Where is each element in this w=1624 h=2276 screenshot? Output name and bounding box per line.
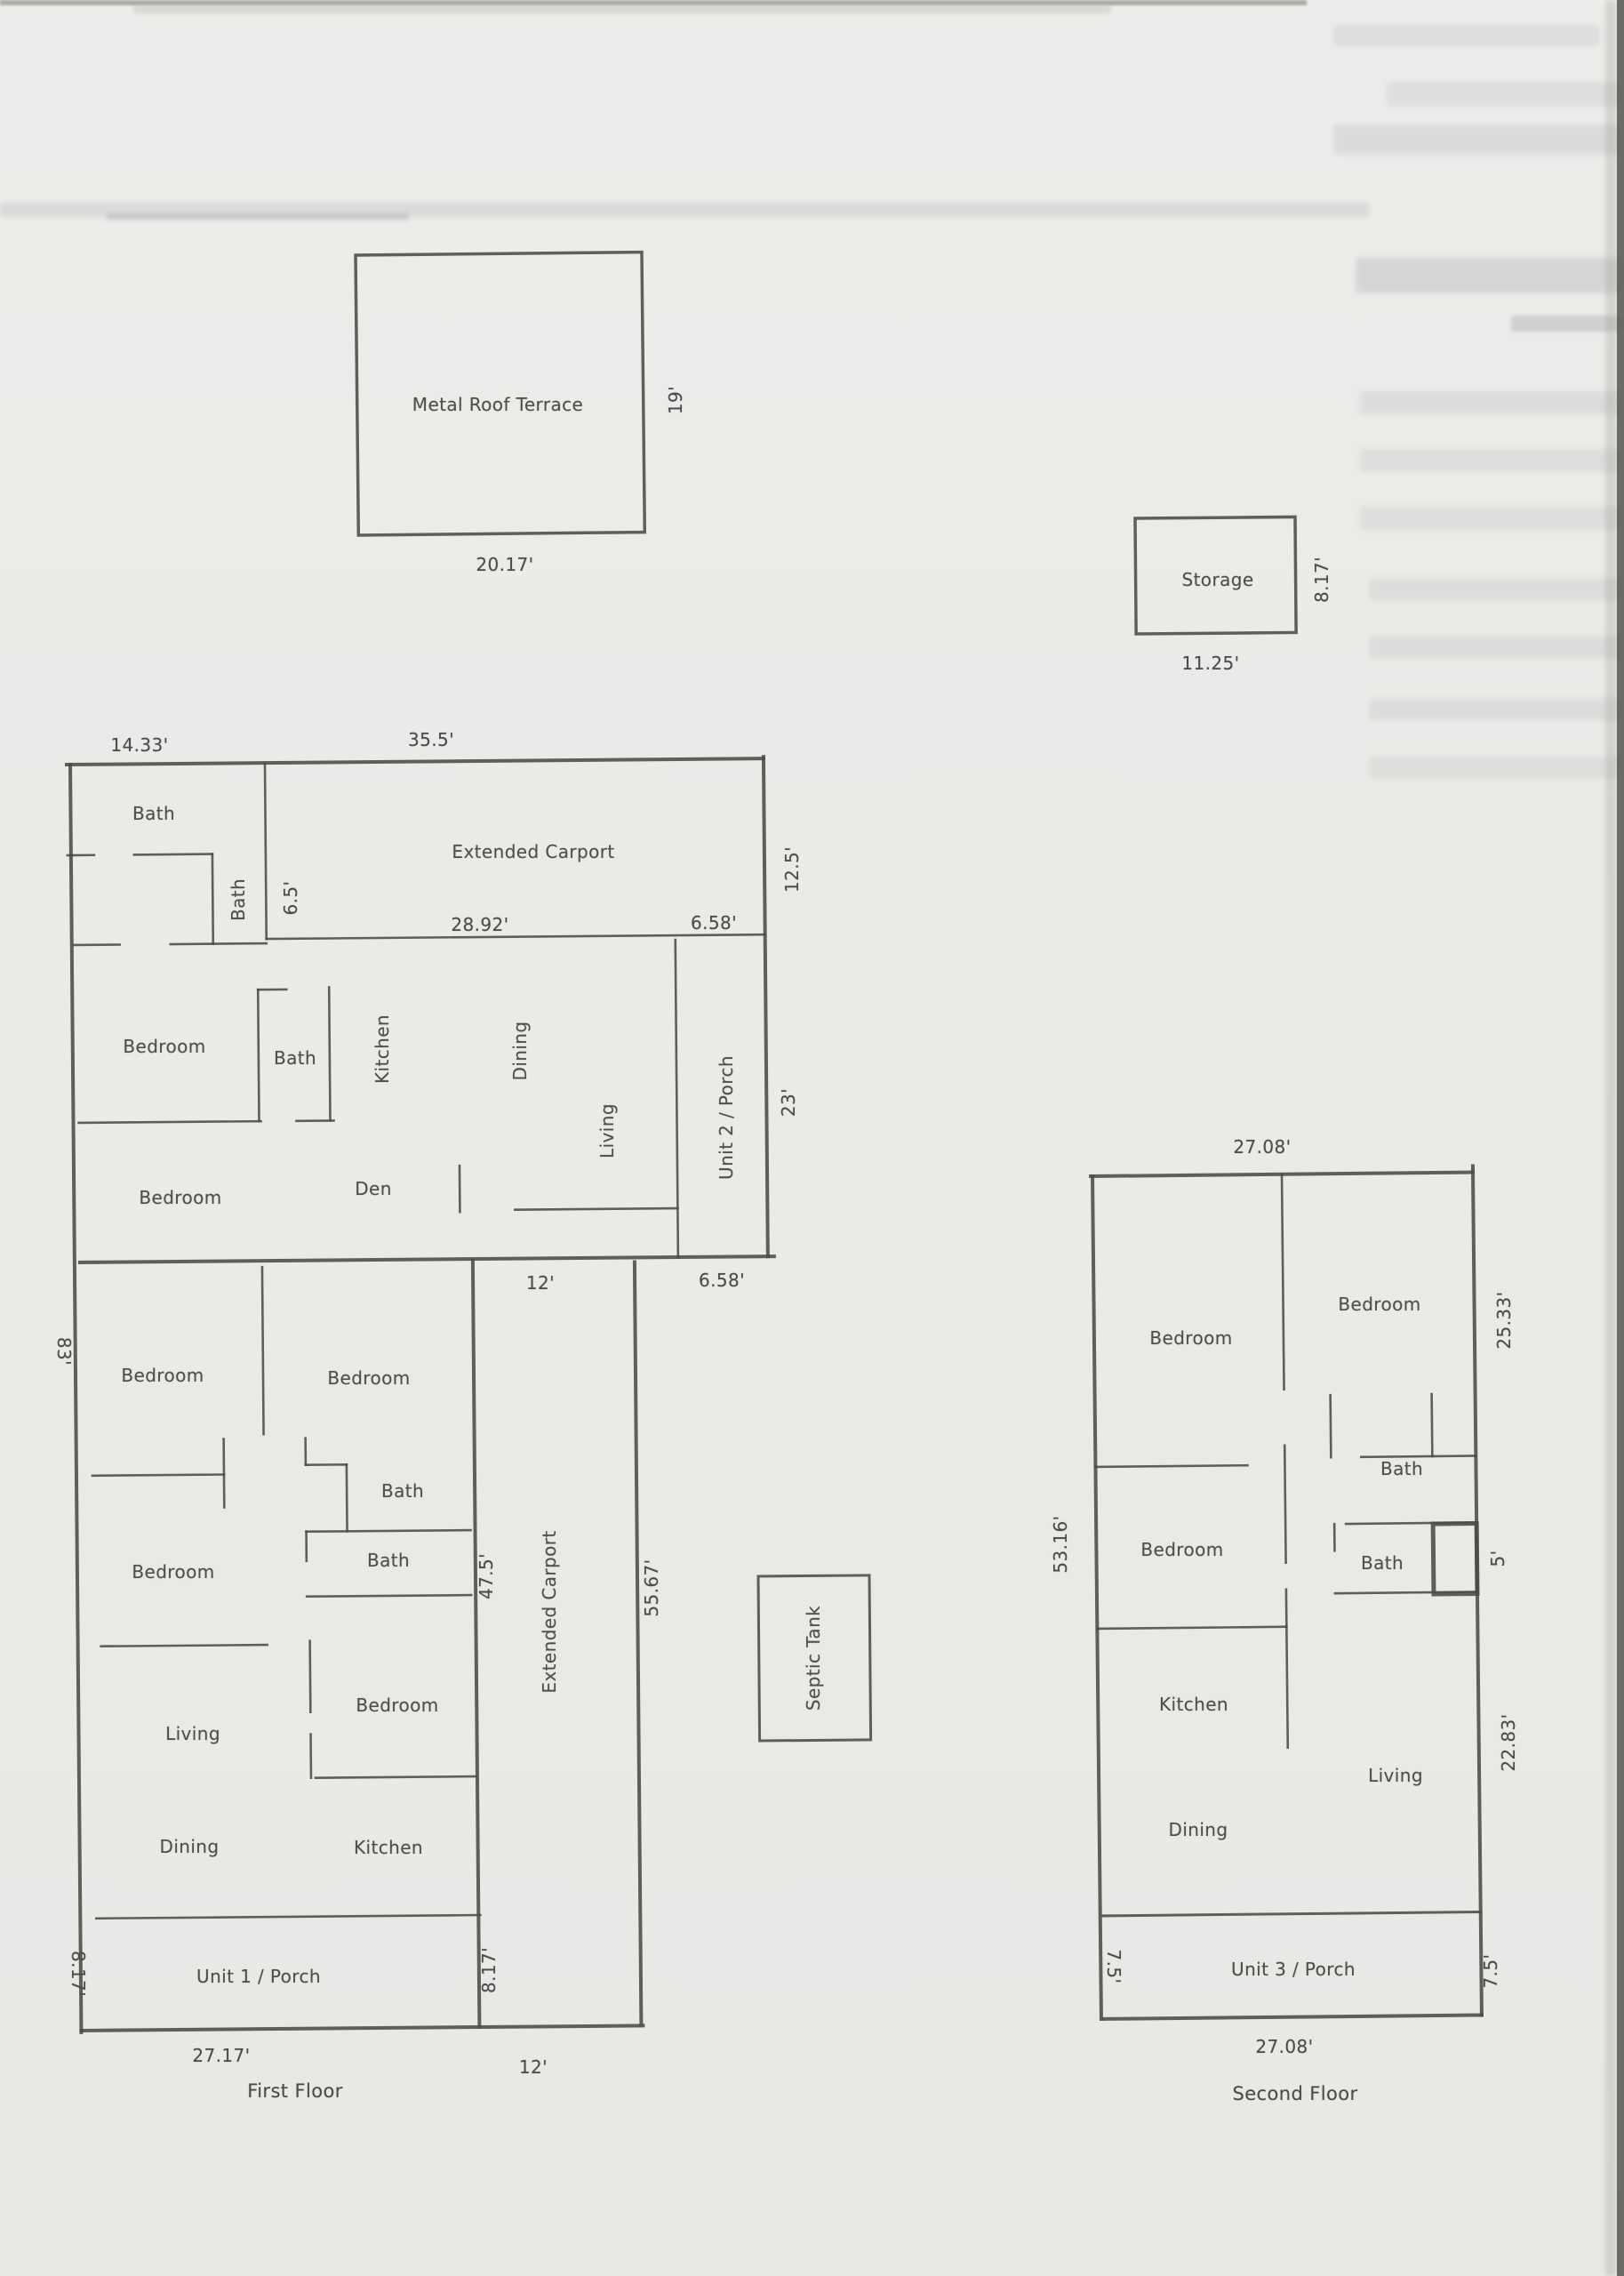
- room-label-bath: Bath: [228, 878, 249, 921]
- bleedthrough-artifact: [1387, 82, 1624, 107]
- dim-label: 53.16': [1050, 1515, 1071, 1573]
- dim-label: 25.33': [1493, 1291, 1515, 1349]
- room-label-bath: Bath: [1361, 1552, 1404, 1574]
- dim-label: 47.5': [476, 1553, 497, 1599]
- dim-label: 23': [778, 1088, 799, 1117]
- room-label-dining: Dining: [160, 1836, 220, 1857]
- dim-label: 28.92': [451, 914, 508, 935]
- second-floor-plan: Bedroom Bedroom Bath Bath Bedroom Kitche…: [1049, 1129, 1582, 2160]
- scan-edge-right: [1617, 0, 1624, 2276]
- room-label-bedroom: Bedroom: [356, 1695, 438, 1716]
- bleedthrough-artifact: [1369, 698, 1624, 721]
- first-floor-plan: Bath Bath Extended Carport Bedroom Bath …: [53, 736, 871, 2159]
- room-label-unit2-porch: Unit 2 / Porch: [716, 1055, 737, 1180]
- room-label-bath: Bath: [274, 1047, 316, 1069]
- bleedthrough-artifact: [1360, 391, 1624, 414]
- dim-label: 55.67': [641, 1559, 662, 1616]
- room-label-bath: Bath: [367, 1550, 410, 1571]
- storage-plan: Storage 8.17' 11.25': [1120, 498, 1369, 702]
- dim-label: 5': [1487, 1550, 1508, 1567]
- scan-edge-right-shadow: [1605, 0, 1617, 2276]
- room-label-bath: Bath: [132, 803, 175, 824]
- room-label-kitchen: Kitchen: [372, 1014, 393, 1084]
- room-label-storage: Storage: [1181, 569, 1253, 590]
- dim-label: 35.5': [408, 729, 454, 750]
- dim-terrace-height: 19': [665, 386, 686, 414]
- dim-label: 22.83': [1498, 1713, 1519, 1771]
- room-label-living: Living: [1368, 1765, 1423, 1786]
- scan-edge-top: [0, 0, 1307, 5]
- dim-label: 7.5': [1103, 1950, 1124, 1984]
- room-label-unit3-porch: Unit 3 / Porch: [1231, 1959, 1356, 1980]
- room-label-living: Living: [165, 1723, 220, 1744]
- room-label-bath: Bath: [381, 1480, 424, 1502]
- bleedthrough-artifact: [1360, 449, 1624, 472]
- first-floor-walls: [53, 736, 871, 2159]
- dim-label: 7.5': [1480, 1954, 1501, 1989]
- dim-label: 27.08': [1255, 2036, 1313, 2057]
- room-label-carport: Extended Carport: [452, 841, 614, 862]
- terrace-walls: [351, 249, 724, 622]
- bleedthrough-artifact: [107, 213, 409, 220]
- room-label-bedroom: Bedroom: [1338, 1294, 1420, 1315]
- dim-label: 8.17': [478, 1947, 500, 1993]
- room-label-dining: Dining: [509, 1022, 531, 1081]
- bleedthrough-artifact: [0, 203, 1369, 217]
- dim-label: 6.5': [280, 881, 301, 916]
- dim-label: 12': [519, 2056, 548, 2078]
- room-label-living: Living: [596, 1103, 618, 1158]
- room-label-bedroom: Bedroom: [327, 1367, 410, 1389]
- dim-label: 12': [526, 1272, 555, 1294]
- dim-terrace-width: 20.17': [476, 554, 533, 575]
- room-label-terrace: Metal Roof Terrace: [412, 394, 583, 415]
- dim-label: 27.08': [1233, 1136, 1291, 1158]
- dim-storage-height: 8.17': [1311, 557, 1332, 603]
- room-label-unit1-porch: Unit 1 / Porch: [196, 1966, 321, 1987]
- bleedthrough-artifact: [1360, 507, 1624, 530]
- dim-label: 27.17': [192, 2045, 250, 2066]
- scanned-floor-plan-page: Metal Roof Terrace 20.17' 19' Storage 8.…: [0, 0, 1624, 2276]
- room-label-bedroom: Bedroom: [1140, 1539, 1223, 1560]
- bleedthrough-artifact: [1333, 124, 1624, 155]
- bleedthrough-artifact: [133, 5, 1111, 13]
- dim-storage-width: 11.25': [1181, 653, 1239, 674]
- room-label-bedroom: Bedroom: [123, 1036, 205, 1057]
- room-label-bedroom: Bedroom: [139, 1187, 221, 1208]
- room-label-bedroom: Bedroom: [132, 1561, 214, 1583]
- dim-label: 83': [53, 1337, 75, 1366]
- room-label-kitchen: Kitchen: [1159, 1694, 1228, 1715]
- bleedthrough-artifact: [1356, 258, 1624, 293]
- room-label-bedroom: Bedroom: [1149, 1327, 1232, 1349]
- bleedthrough-artifact: [1333, 25, 1600, 46]
- dim-label: 6.58': [699, 1270, 745, 1291]
- room-label-bedroom: Bedroom: [121, 1365, 204, 1386]
- room-label-bath: Bath: [1380, 1458, 1423, 1479]
- floor-caption-second: Second Floor: [1232, 2083, 1357, 2104]
- dim-label: 14.33': [110, 734, 168, 756]
- room-label-dining: Dining: [1169, 1819, 1228, 1840]
- dim-label: 6.58': [691, 912, 737, 934]
- room-label-kitchen: Kitchen: [354, 1837, 423, 1858]
- room-label-carport: Extended Carport: [539, 1530, 560, 1693]
- dim-label: 8.17': [68, 1951, 89, 1997]
- bleedthrough-artifact: [1511, 316, 1624, 332]
- floor-caption-first: First Floor: [247, 2080, 343, 2102]
- room-label-den: Den: [355, 1178, 392, 1199]
- second-floor-walls: [1049, 1129, 1582, 2160]
- bleedthrough-artifact: [1369, 636, 1624, 659]
- bleedthrough-artifact: [1369, 578, 1624, 601]
- terrace-plan: Metal Roof Terrace 20.17' 19': [351, 249, 724, 622]
- dim-label: 12.5': [781, 846, 803, 893]
- bleedthrough-artifact: [1369, 756, 1624, 779]
